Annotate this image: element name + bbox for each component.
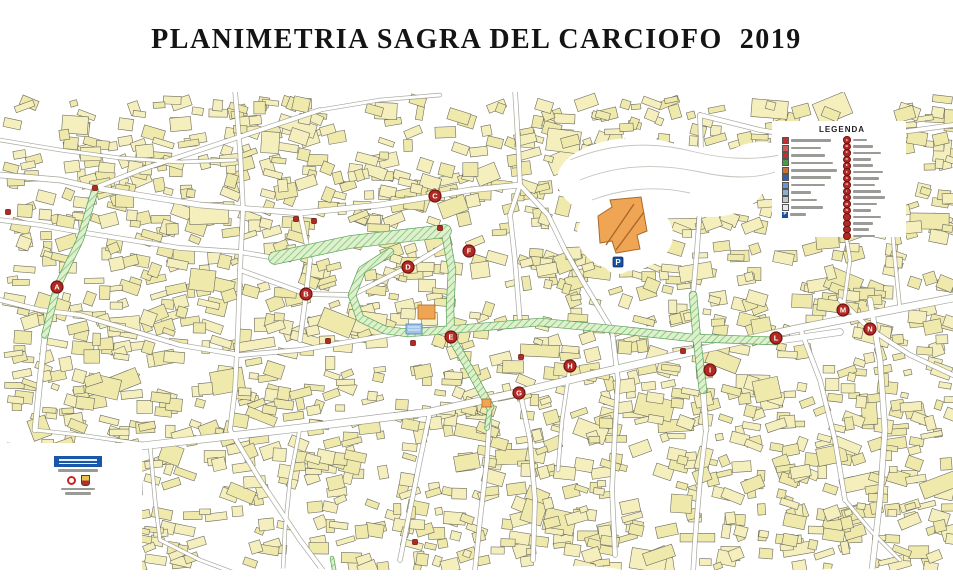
legend-item — [782, 144, 837, 151]
legend: LEGENDA P ABCDEFGHILMN — [778, 123, 906, 235]
map-canvas[interactable]: ABCDEFGHILMN P — [0, 0, 953, 587]
legend-left-column: P — [782, 137, 837, 239]
legend-swatch-icon — [782, 152, 789, 159]
small-marker — [294, 217, 299, 222]
legend-title: LEGENDA — [778, 125, 906, 134]
small-marker — [411, 341, 416, 346]
parking-legend-icon: P — [782, 212, 788, 218]
crest-icon — [81, 475, 90, 486]
svg-text:I: I — [709, 366, 711, 375]
legend-label-bar — [853, 184, 875, 187]
small-marker — [681, 349, 686, 354]
legend-label-bar — [853, 152, 881, 155]
logo-caption-bar — [65, 492, 91, 495]
legend-item — [782, 189, 837, 196]
legend-label-bar — [853, 177, 879, 180]
svg-text:L: L — [774, 334, 779, 343]
legend-label-bar — [853, 158, 871, 161]
legend-label-bar — [791, 176, 831, 179]
legend-label-bar — [791, 191, 811, 194]
marker-B[interactable]: B — [300, 288, 312, 300]
svg-text:B: B — [303, 290, 309, 299]
legend-item — [782, 204, 837, 211]
svg-text:F: F — [467, 247, 472, 256]
legend-label-bar — [791, 184, 825, 187]
legend-right-column: ABCDEFGHILMN — [843, 137, 885, 239]
legend-label-bar — [853, 235, 875, 238]
small-marker — [6, 210, 11, 215]
logo-caption-bar — [58, 469, 98, 472]
marker-N[interactable]: N — [864, 323, 876, 335]
marker-H[interactable]: H — [564, 360, 576, 372]
svg-text:M: M — [840, 306, 846, 315]
parking-icon: P — [613, 257, 623, 267]
svg-text:G: G — [516, 389, 522, 398]
legend-item: P — [782, 211, 837, 218]
svg-text:C: C — [432, 192, 438, 201]
marker-G[interactable]: G — [513, 387, 525, 399]
municipality-logo-block — [46, 456, 110, 495]
municipality-banner — [54, 456, 102, 467]
small-marker — [326, 339, 331, 344]
legend-swatch-icon — [782, 167, 789, 174]
marker-L[interactable]: L — [770, 332, 782, 344]
legend-item — [782, 181, 837, 188]
small-marker — [312, 219, 317, 224]
small-marker — [93, 186, 98, 191]
legend-label-bar — [853, 164, 873, 167]
legend-label-bar — [791, 147, 821, 150]
svg-text:H: H — [567, 362, 572, 371]
legend-label-bar — [791, 206, 823, 209]
legend-item — [843, 233, 885, 239]
marker-F[interactable]: F — [463, 245, 475, 257]
legend-label-bar — [853, 222, 873, 225]
svg-text:N: N — [867, 325, 872, 334]
legend-swatch-icon — [782, 137, 789, 144]
legend-label-bar — [853, 209, 871, 212]
svg-text:P: P — [615, 258, 621, 267]
marker-I[interactable]: I — [704, 364, 716, 376]
legend-item — [782, 174, 837, 181]
legend-label-bar — [791, 154, 825, 157]
legend-swatch-icon — [782, 182, 789, 189]
roundel-icon — [67, 476, 76, 485]
legend-swatch-icon — [782, 196, 789, 203]
marker-C[interactable]: C — [429, 190, 441, 202]
svg-text:D: D — [405, 263, 411, 272]
legend-swatch-icon — [782, 174, 789, 181]
legend-item — [782, 152, 837, 159]
legend-label-bar — [791, 199, 817, 202]
small-marker — [519, 355, 524, 360]
small-marker — [413, 540, 418, 545]
logo-crests — [67, 475, 90, 486]
svg-text:E: E — [448, 333, 453, 342]
legend-item — [782, 196, 837, 203]
legend-item — [782, 167, 837, 174]
legend-swatch-icon — [782, 189, 789, 196]
legend-label-bar — [853, 139, 867, 142]
logo-caption-bar — [61, 488, 95, 491]
legend-label-bar — [791, 139, 831, 142]
legend-item — [782, 159, 837, 166]
svg-text:A: A — [54, 283, 60, 292]
legend-label-bar — [853, 228, 869, 231]
legend-label-bar — [853, 171, 883, 174]
legend-label-bar — [853, 216, 881, 219]
small-marker — [438, 226, 443, 231]
legend-swatch-icon — [782, 204, 789, 211]
legend-label-bar — [790, 213, 806, 216]
legend-label-bar — [791, 169, 837, 172]
legend-marker-icon — [843, 232, 851, 240]
legend-item — [782, 137, 837, 144]
legend-label-bar — [853, 145, 873, 148]
legend-label-bar — [853, 196, 885, 199]
marker-D[interactable]: D — [402, 261, 414, 273]
legend-swatch-icon — [782, 145, 789, 152]
marker-E[interactable]: E — [445, 331, 457, 343]
legend-label-bar — [791, 162, 833, 165]
marker-A[interactable]: A — [51, 281, 63, 293]
legend-label-bar — [853, 190, 881, 193]
map-page: PLANIMETRIA SAGRA DEL CARCIOFO 2019 ABCD… — [0, 0, 953, 587]
legend-swatch-icon — [782, 159, 789, 166]
legend-label-bar — [853, 203, 877, 206]
marker-M[interactable]: M — [837, 304, 849, 316]
